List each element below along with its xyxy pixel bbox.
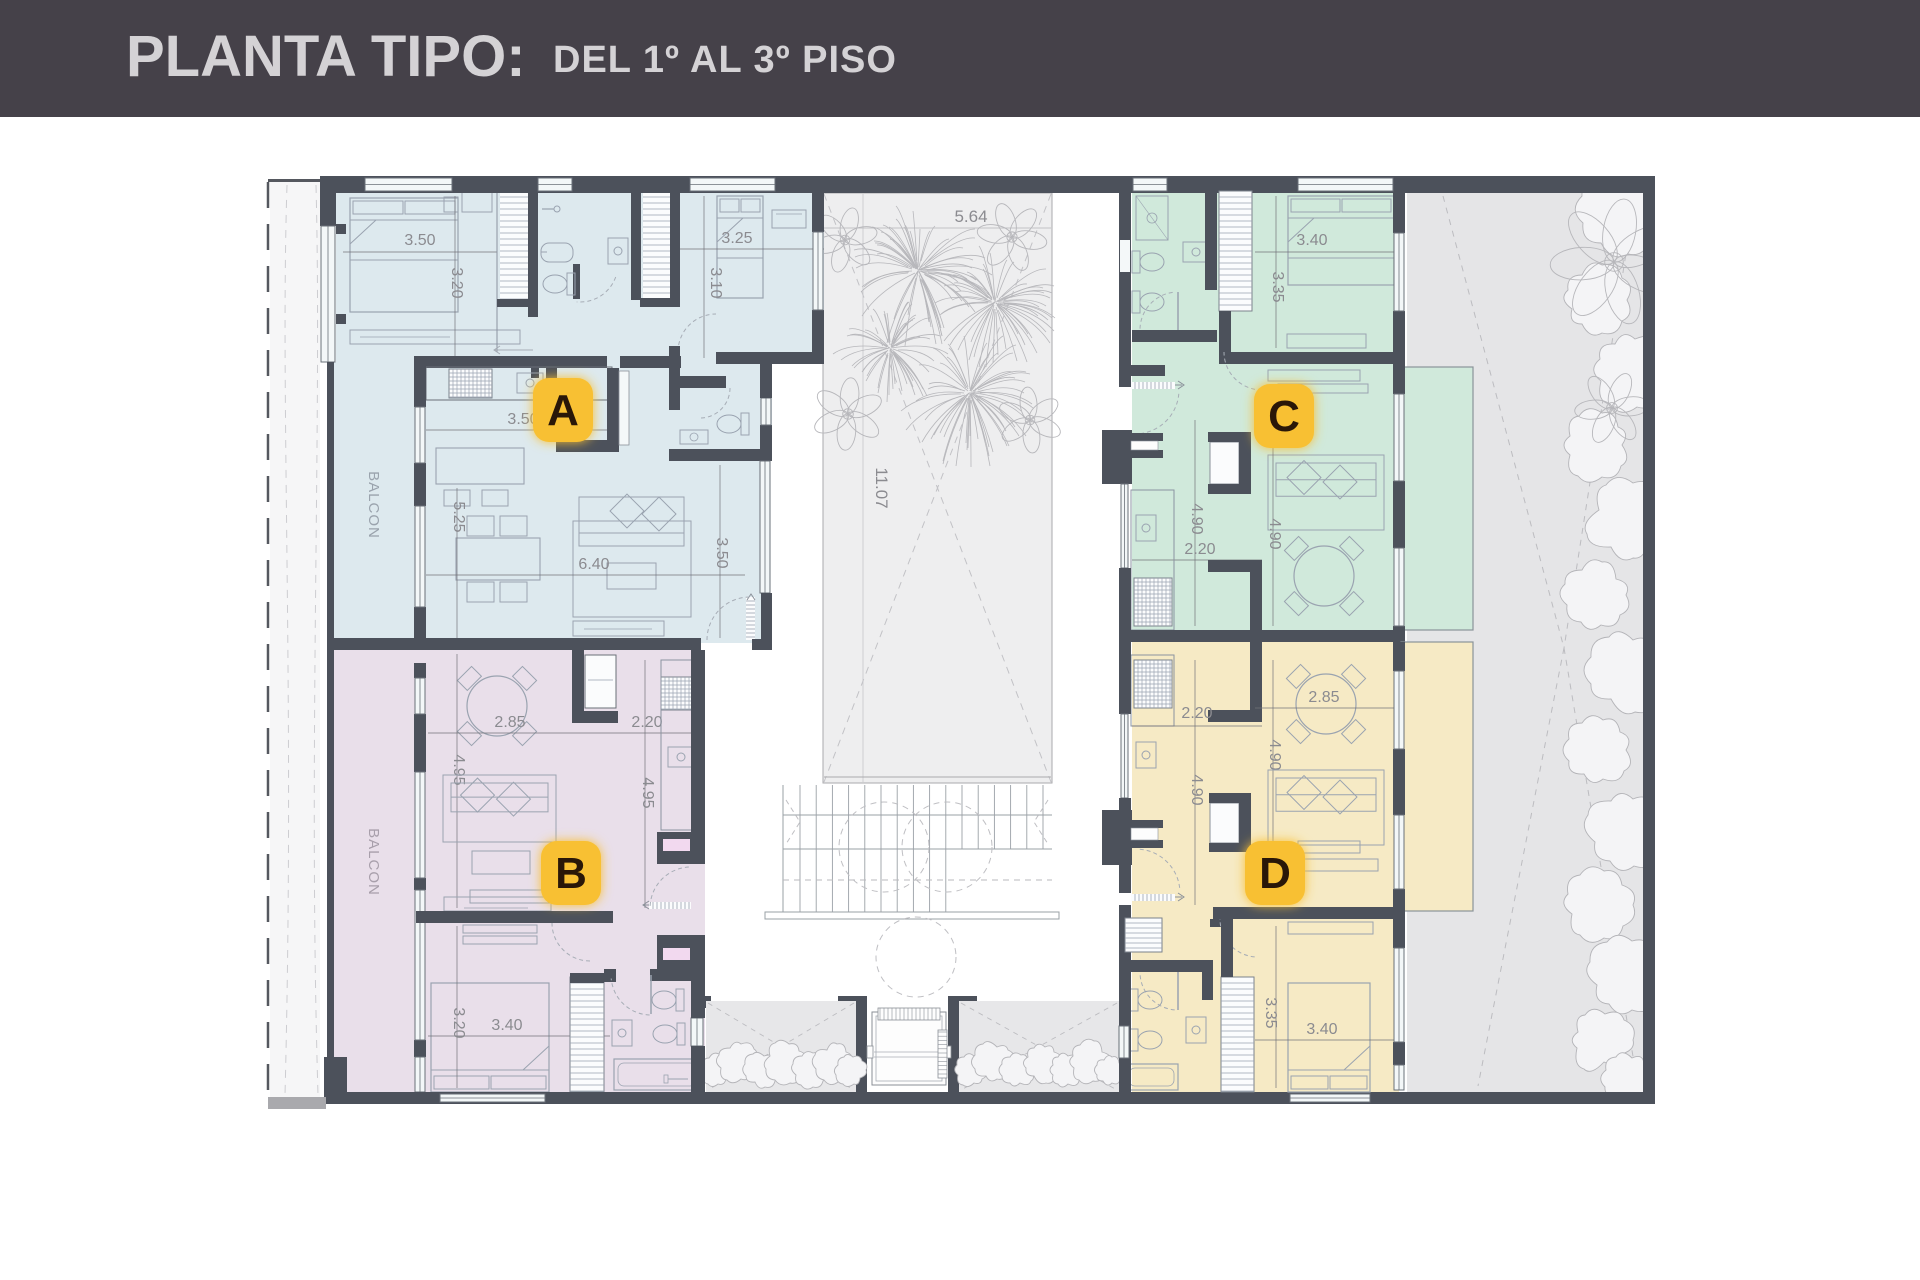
svg-text:4.90: 4.90 xyxy=(1188,503,1205,534)
svg-text:5.25: 5.25 xyxy=(450,501,467,532)
svg-text:3.40: 3.40 xyxy=(491,1017,522,1034)
svg-text:3.40: 3.40 xyxy=(1296,232,1327,249)
svg-text:C: C xyxy=(1268,392,1300,441)
svg-text:2.20: 2.20 xyxy=(1181,705,1212,722)
svg-text:3.50: 3.50 xyxy=(713,537,730,568)
svg-text:4.95: 4.95 xyxy=(450,754,467,785)
svg-text:11.07: 11.07 xyxy=(872,467,891,508)
svg-text:4.95: 4.95 xyxy=(639,777,656,808)
svg-text:2.20: 2.20 xyxy=(631,714,662,731)
svg-text:3.20: 3.20 xyxy=(450,1007,467,1038)
svg-text:3.35: 3.35 xyxy=(1262,997,1279,1028)
svg-text:DEL 1º AL 3º PISO: DEL 1º AL 3º PISO xyxy=(553,39,897,81)
svg-text:3.35: 3.35 xyxy=(1269,271,1286,302)
svg-text:A: A xyxy=(547,386,579,435)
svg-text:2.85: 2.85 xyxy=(494,714,525,731)
svg-text:6.40: 6.40 xyxy=(578,556,609,573)
svg-text:PLANTA TIPO:: PLANTA TIPO: xyxy=(126,24,526,89)
svg-text:2.85: 2.85 xyxy=(1308,689,1339,706)
svg-text:BALCON: BALCON xyxy=(365,828,382,896)
svg-text:4.90: 4.90 xyxy=(1188,774,1205,805)
svg-text:3.20: 3.20 xyxy=(448,267,465,298)
svg-text:3.25: 3.25 xyxy=(721,230,752,247)
svg-text:4.90: 4.90 xyxy=(1266,518,1283,549)
svg-text:3.50: 3.50 xyxy=(404,232,435,249)
svg-text:3.40: 3.40 xyxy=(1306,1021,1337,1038)
svg-text:D: D xyxy=(1259,849,1291,898)
svg-text:5.64: 5.64 xyxy=(954,207,987,226)
svg-text:3.10: 3.10 xyxy=(707,267,724,298)
svg-text:B: B xyxy=(555,849,587,898)
svg-text:BALCON: BALCON xyxy=(365,471,382,539)
svg-text:4.90: 4.90 xyxy=(1266,739,1283,770)
svg-text:2.20: 2.20 xyxy=(1184,541,1215,558)
